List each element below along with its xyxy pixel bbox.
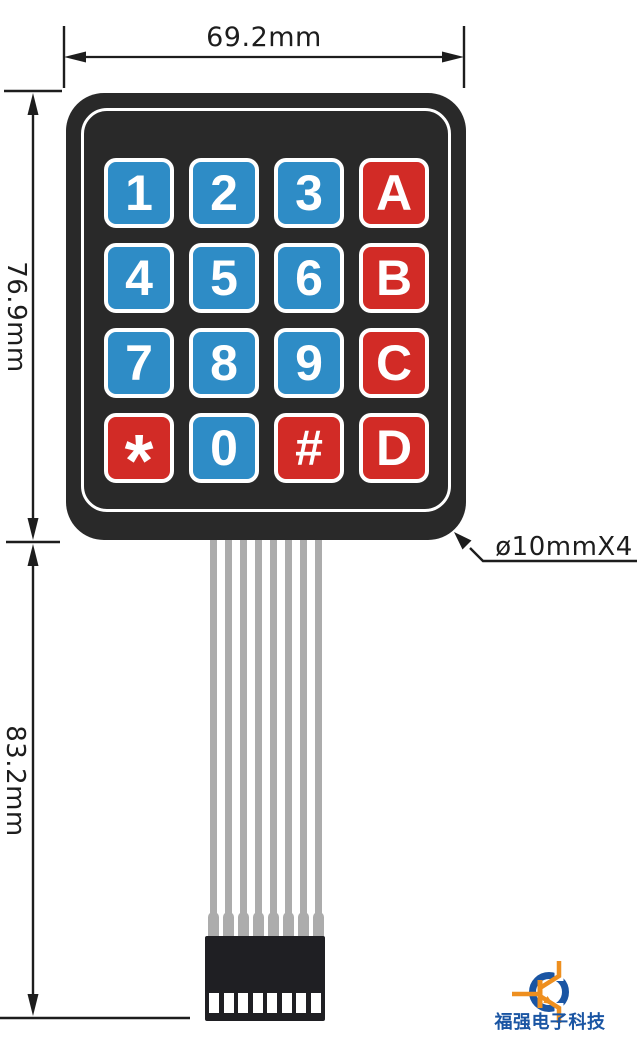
connector-slot bbox=[267, 993, 277, 1013]
ribbon-cable bbox=[210, 540, 322, 936]
connector-pin bbox=[268, 912, 279, 938]
connector-slot-row bbox=[205, 993, 325, 1013]
connector-slot bbox=[209, 993, 219, 1013]
ribbon-wire bbox=[240, 540, 247, 936]
key-star[interactable]: * bbox=[104, 413, 174, 483]
connector-slot bbox=[282, 993, 292, 1013]
ribbon-wire bbox=[300, 540, 307, 936]
ribbon-wire bbox=[270, 540, 277, 936]
connector-slot bbox=[311, 993, 321, 1013]
key-9[interactable]: 9 bbox=[274, 328, 344, 398]
key-grid: 1 2 3 A 4 5 6 B 7 8 9 C * 0 # D bbox=[104, 158, 429, 483]
key-hash[interactable]: # bbox=[274, 413, 344, 483]
key-2[interactable]: 2 bbox=[189, 158, 259, 228]
ribbon-wire bbox=[285, 540, 292, 936]
width-dimension-label: 69.2mm bbox=[164, 22, 364, 53]
key-b[interactable]: B bbox=[359, 243, 429, 313]
connector-pin bbox=[208, 912, 219, 938]
ribbon-wire bbox=[315, 540, 322, 936]
cable-connector bbox=[205, 936, 325, 1021]
connector-pin bbox=[238, 912, 249, 938]
connector-slot bbox=[238, 993, 248, 1013]
connector-slot bbox=[296, 993, 306, 1013]
connector-pin bbox=[313, 912, 324, 938]
key-7[interactable]: 7 bbox=[104, 328, 174, 398]
connector-slot bbox=[224, 993, 234, 1013]
key-c[interactable]: C bbox=[359, 328, 429, 398]
key-3[interactable]: 3 bbox=[274, 158, 344, 228]
brand-name: 福强电子科技 bbox=[490, 1008, 610, 1034]
height-dimension-label: 76.9mm bbox=[1, 255, 31, 379]
key-5[interactable]: 5 bbox=[189, 243, 259, 313]
ribbon-wire bbox=[210, 540, 217, 936]
connector-pin bbox=[298, 912, 309, 938]
ribbon-wire bbox=[255, 540, 262, 936]
key-6[interactable]: 6 bbox=[274, 243, 344, 313]
key-0[interactable]: 0 bbox=[189, 413, 259, 483]
connector-slot bbox=[253, 993, 263, 1013]
keypad-body: 1 2 3 A 4 5 6 B 7 8 9 C * 0 # D bbox=[66, 93, 466, 540]
key-a[interactable]: A bbox=[359, 158, 429, 228]
cable-length-dimension-label: 83.2mm bbox=[0, 719, 30, 843]
connector-pin bbox=[253, 912, 264, 938]
key-8[interactable]: 8 bbox=[189, 328, 259, 398]
key-4[interactable]: 4 bbox=[104, 243, 174, 313]
connector-pin bbox=[223, 912, 234, 938]
ribbon-wire bbox=[225, 540, 232, 936]
key-1[interactable]: 1 bbox=[104, 158, 174, 228]
connector-pin bbox=[283, 912, 294, 938]
key-d[interactable]: D bbox=[359, 413, 429, 483]
button-spec-label: ø10mmX4 bbox=[488, 532, 640, 562]
product-diagram: 69.2mm 76.9mm 83.2mm ø10mmX4 1 2 3 A 4 5… bbox=[0, 0, 640, 1055]
